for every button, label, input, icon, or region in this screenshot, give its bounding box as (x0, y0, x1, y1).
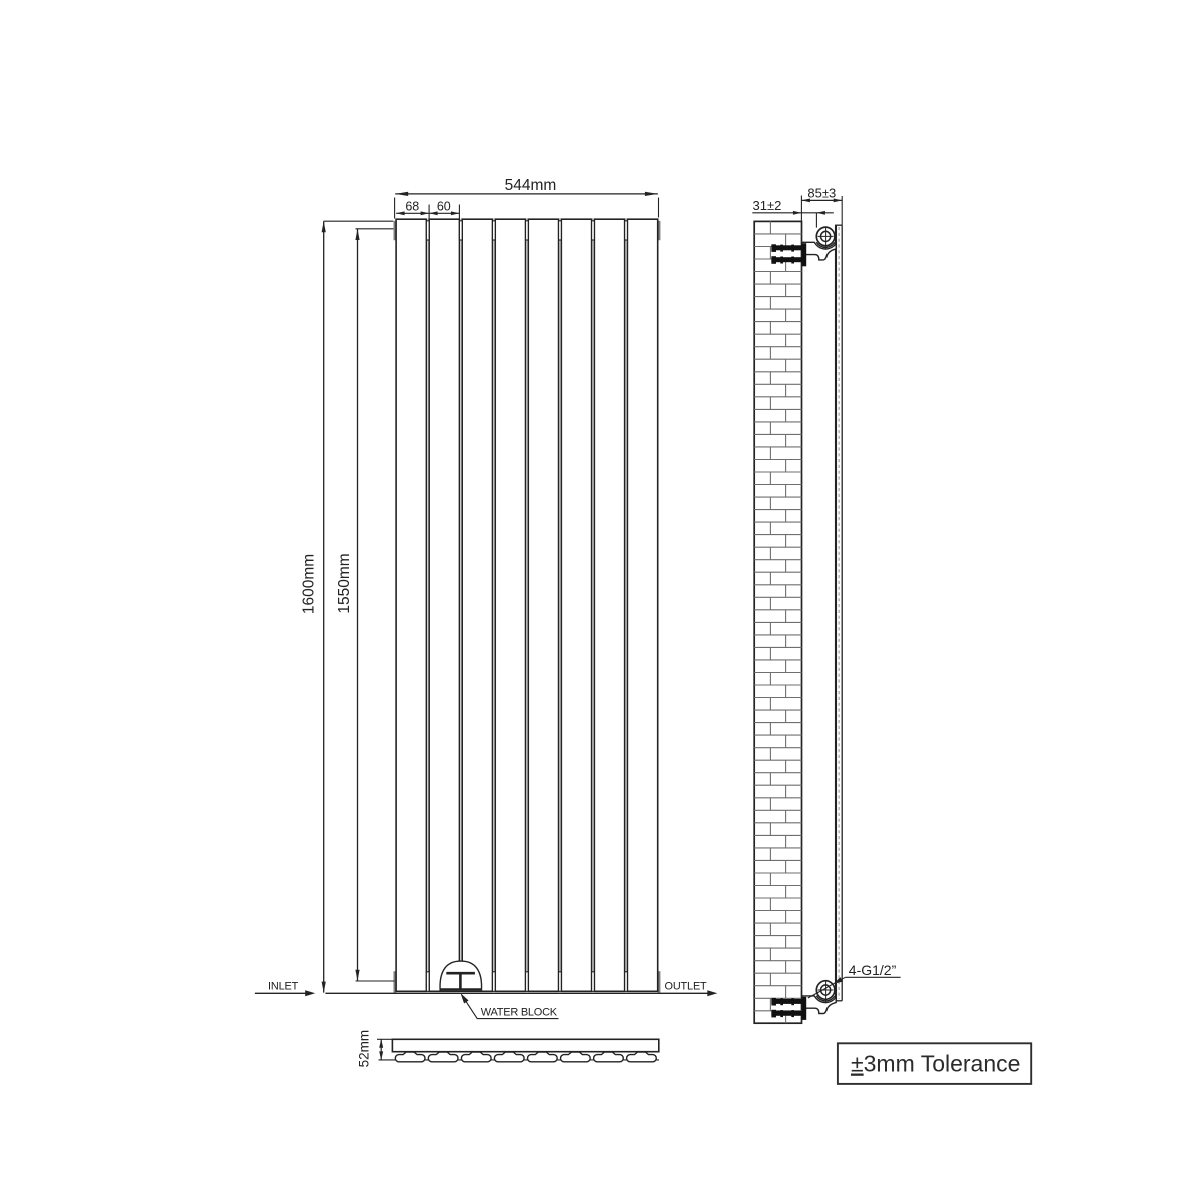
svg-text:WATER BLOCK: WATER BLOCK (481, 1007, 558, 1019)
svg-text:OUTLET: OUTLET (665, 981, 708, 993)
svg-text:1600mm: 1600mm (300, 554, 317, 614)
svg-text:31±2: 31±2 (753, 198, 782, 213)
svg-text:±3mm Tolerance: ±3mm Tolerance (851, 1051, 1020, 1077)
svg-text:52mm: 52mm (357, 1030, 372, 1068)
svg-text:INLET: INLET (268, 981, 299, 993)
svg-text:85±3: 85±3 (807, 186, 836, 201)
svg-text:4-G1/2”: 4-G1/2” (849, 962, 897, 978)
svg-text:60: 60 (437, 200, 451, 214)
svg-text:1550mm: 1550mm (336, 553, 353, 613)
svg-text:544mm: 544mm (505, 177, 557, 194)
svg-text:68: 68 (405, 200, 419, 214)
